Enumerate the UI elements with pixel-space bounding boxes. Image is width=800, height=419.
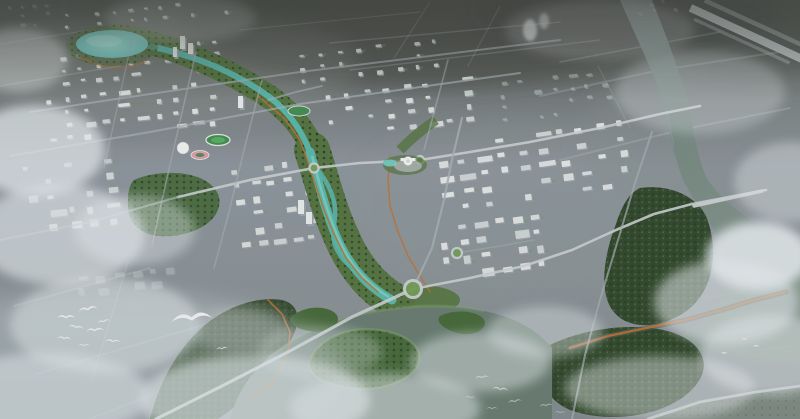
aerial-masterplan-rendering (0, 0, 800, 419)
screenshot-root: Aerial bird's-eye architectural renderin… (0, 0, 800, 419)
global-veil (0, 0, 800, 419)
atmosphere-overlays (0, 0, 800, 419)
